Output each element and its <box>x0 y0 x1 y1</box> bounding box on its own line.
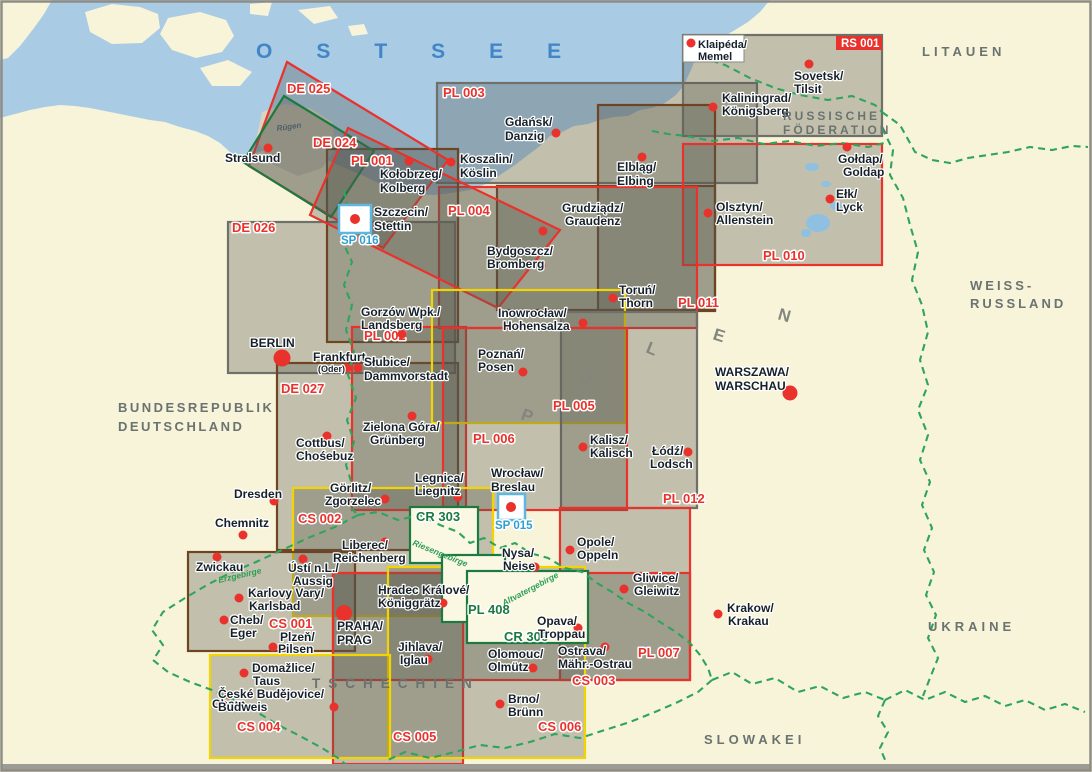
sheet-label-de024: DE 024 <box>313 135 357 150</box>
region-label-ostsee: OSTSEE <box>256 40 605 63</box>
city-label-ostrava-1: Mähr.-Ostrau <box>558 657 632 671</box>
sheet-label-cs003: CS 003 <box>572 673 615 688</box>
city-label-kaliningrad-1: Königsberg <box>722 104 789 118</box>
city-dot-cheb <box>220 616 229 625</box>
city-label-praha-0: PRAHA/ <box>337 619 384 633</box>
city-dot-gliwice <box>620 585 629 594</box>
city-legnica: Legnica/Liegnitz <box>415 471 464 502</box>
city-dot-lodz <box>684 448 693 457</box>
city-lodz: Łódź/Lodsch <box>650 444 693 471</box>
city-label-warszawa-1: WARSCHAU <box>715 379 786 393</box>
city-label-goldap-1: Goldap <box>843 165 884 179</box>
city-label-sovetsk-0: Sovetsk/ <box>794 69 844 83</box>
city-dot-grudziadz <box>539 227 548 236</box>
sheet-label-rs001: RS 001 <box>841 38 880 50</box>
city-dot-sovetsk <box>805 60 814 69</box>
sheet-label-cs004: CS 004 <box>237 719 281 734</box>
city-label-krakow-0: Krakow/ <box>727 601 774 615</box>
city-label-gdansk-0: Gdańsk/ <box>505 115 553 129</box>
city-label-slubice-0: Słubice/ <box>364 355 411 369</box>
lake-4 <box>801 229 811 237</box>
sheet-label-pl011: PL 011 <box>678 295 719 310</box>
city-label-poznan-0: Poznań/ <box>478 347 525 361</box>
city-label-ceske-budejovice-1: Budweis <box>218 700 268 714</box>
city-label-sovetsk-1: Tilsit <box>794 82 822 96</box>
sheet-label-de027: DE 027 <box>281 381 324 396</box>
city-label-klaipeda-1: Memel <box>698 51 732 63</box>
city-label-frankfurt-oder-1: (Oder) <box>318 364 345 374</box>
sheet-label-cr303: CR 303 <box>416 509 460 524</box>
city-dot-chemnitz <box>239 531 248 540</box>
city-label-opole-1: Oppeln <box>577 548 618 562</box>
region-label-weissrussland-2: RUSSLAND <box>970 296 1066 311</box>
city-label-gorzow-1: Landsberg <box>361 318 422 332</box>
city-label-opole-0: Opole/ <box>577 535 615 549</box>
city-label-elk-0: Ełk/ <box>836 187 858 201</box>
city-label-kolobrzeg-1: Kolberg <box>380 181 425 195</box>
city-label-warszawa-0: WARSZAWA/ <box>715 365 790 379</box>
city-dot-karlovy-vary <box>235 594 244 603</box>
city-label-hradec-kralove-1: Königgrätz <box>378 596 441 610</box>
citymap-sp015-dot <box>506 502 516 512</box>
lake-2 <box>806 214 830 232</box>
map-index-page: PL 003RS 001PL 011PL 010PL 004DE 026DE 0… <box>0 0 1092 772</box>
city-dot-plzen <box>269 643 278 652</box>
region-label-bundesrepublik-2: DEUTSCHLAND <box>118 419 244 434</box>
city-label-usti-0: Ústí n.L./ <box>288 560 339 575</box>
city-dot-goldap <box>843 143 852 152</box>
city-label-gorlitz-1: Zgorzelec <box>325 494 381 508</box>
sheet-label-pl010: PL 010 <box>763 248 805 263</box>
sheet-label-pl005: PL 005 <box>553 398 595 413</box>
region-label-weissrussland-1: WEISS- <box>970 278 1034 293</box>
sheet-label-pl012: PL 012 <box>663 491 705 506</box>
city-dot-domazlice <box>240 669 249 678</box>
sheet-label-sp016: SP 016 <box>341 235 379 247</box>
city-dot-berlin <box>274 350 291 367</box>
city-dot-poznan <box>519 368 528 377</box>
city-label-szczecin-0: Szczecin/ <box>374 205 429 219</box>
sheet-label-pl004: PL 004 <box>448 203 490 218</box>
city-label-karlovy-vary-0: Karlovy Vary/ <box>248 586 325 600</box>
city-label-torun-1: Thorn <box>619 296 653 310</box>
city-label-krakow-1: Krakau <box>728 614 769 628</box>
city-label-legnica-1: Liegnitz <box>415 484 460 498</box>
map-canvas: PL 003RS 001PL 011PL 010PL 004DE 026DE 0… <box>0 0 1092 772</box>
city-label-olsztyn-1: Allenstein <box>716 213 773 227</box>
city-label-opava-1: Troppau <box>538 627 585 641</box>
city-dot-kaliningrad <box>709 103 718 112</box>
city-label-kaliningrad-0: Kaliningrad/ <box>722 91 792 105</box>
city-label-inowroclaw-0: Inowrocław/ <box>498 306 567 320</box>
city-label-olomouc-1: Olmütz <box>488 660 529 674</box>
lake-1 <box>821 181 831 187</box>
city-label-frankfurt-oder-0: Frankfurt <box>313 350 366 364</box>
region-label-russische-foederation-1: RUSSISCHE <box>783 109 880 123</box>
city-dot-brno <box>496 700 505 709</box>
city-label-elk-1: Lyck <box>836 200 863 214</box>
city-dot-kolobrzeg <box>405 157 414 166</box>
sheet-label-de025: DE 025 <box>287 81 330 96</box>
city-label-jihlava-0: Jihlava/ <box>398 640 443 654</box>
city-label-chemnitz-0: Chemnitz <box>215 516 269 530</box>
city-label-brno-0: Brno/ <box>508 692 540 706</box>
city-label-kalisz-0: Kalisz/ <box>590 433 629 447</box>
region-label-ukraine: UKRAINE <box>928 619 1015 634</box>
region-label-slowakei: SLOWAKEI <box>704 732 805 747</box>
city-label-grudziadz-0: Grudziądz/ <box>562 201 624 215</box>
city-label-elblag-0: Elbląg/ <box>617 160 657 174</box>
city-label-klaipeda-0: Klaipéda/ <box>698 39 747 51</box>
city-label-olsztyn-0: Olsztyn/ <box>716 200 763 214</box>
city-dot-inowroclaw <box>579 319 588 328</box>
city-label-lodz-0: Łódź/ <box>652 444 684 458</box>
city-label-stralsund-0: Stralsund <box>225 151 280 165</box>
region-label-russische-foederation-2: FÖDERATION <box>783 122 891 137</box>
city-dot-olomouc <box>529 664 538 673</box>
city-label-gliwice-0: Gliwice/ <box>633 571 679 585</box>
sheet-label-de026: DE 026 <box>232 220 275 235</box>
sheet-label-pl001: PL 001 <box>351 153 393 168</box>
city-label-inowroclaw-1: Hohensalza <box>503 319 570 333</box>
city-label-goldap-0: Gołdap/ <box>838 152 883 166</box>
city-label-kolobrzeg-0: Kołobrzeg/ <box>380 167 443 181</box>
region-label-bundesrepublik-1: BUNDESREPUBLIK <box>118 400 274 415</box>
city-nysa: Nysa/Neise <box>502 546 540 573</box>
city-label-lodz-1: Lodsch <box>650 457 693 471</box>
city-label-wroclaw-1: Breslau <box>491 480 535 494</box>
city-dot-kalisz <box>579 443 588 452</box>
city-label-gdansk-1: Danzig <box>505 129 544 143</box>
city-label-nysa-0: Nysa/ <box>502 546 535 560</box>
region-label-tschechien: TSCHECHIEN <box>312 676 480 691</box>
city-label-opava-0: Opava/ <box>537 614 578 628</box>
city-label-bydgoszcz-0: Bydgoszcz/ <box>487 244 554 258</box>
map-bottom-edge <box>2 764 1090 770</box>
city-dot-koszalin <box>447 158 456 167</box>
city-label-gorzow-0: Gorzów Wpk./ <box>361 305 441 319</box>
city-label-kalisz-1: Kalisch <box>590 446 633 460</box>
sheet-label-pl007: PL 007 <box>638 645 680 660</box>
city-label-cottbus-0: Cottbus/ <box>296 436 345 450</box>
sheet-label-sp015: SP 015 <box>495 520 533 532</box>
city-label-gliwice-1: Gleiwitz <box>634 584 679 598</box>
sheet-label-cs001: CS 001 <box>269 616 312 631</box>
city-bydgoszcz: Bydgoszcz/Bromberg <box>487 244 554 271</box>
city-dot-ceske-budejovice <box>330 703 339 712</box>
city-dot-olsztyn <box>704 209 713 218</box>
city-label-elblag-1: Elbing <box>617 174 654 188</box>
city-label-praha-1: PRAG <box>337 633 372 647</box>
city-label-ostrava-0: Ostrava/ <box>558 644 607 658</box>
city-label-wroclaw-0: Wrocław/ <box>491 466 544 480</box>
city-dot-gorlitz <box>381 495 390 504</box>
city-label-ceske-budejovice-0: České Budějovice/ <box>218 686 325 701</box>
city-label-koszalin-0: Koszalin/ <box>460 152 513 166</box>
sheet-label-cs002: CS 002 <box>298 511 341 526</box>
city-dot-gdansk <box>552 129 561 138</box>
city-label-liberec-0: Liberec/ <box>342 538 389 552</box>
city-dot-klaipeda <box>687 39 696 48</box>
city-label-domazlice-1: Taus <box>253 674 280 688</box>
city-label-hradec-kralove-0: Hradec Králové/ <box>378 583 470 597</box>
region-label-litauen: LITAUEN <box>922 44 1005 59</box>
city-label-berlin-0: BERLIN <box>250 336 295 350</box>
city-label-brno-1: Brünn <box>508 705 543 719</box>
city-label-zielona-gora-0: Zielona Góra/ <box>363 420 440 434</box>
city-dot-torun <box>609 294 618 303</box>
city-label-cottbus-1: Chośebuz <box>296 449 353 463</box>
city-label-domazlice-0: Domažlice/ <box>252 661 315 675</box>
city-dot-krakow <box>714 610 723 619</box>
city-label-dresden-0: Dresden <box>234 487 282 501</box>
lake-0 <box>805 163 819 171</box>
city-label-slubice-1: Dammvorstadt <box>364 369 448 383</box>
city-label-koszalin-1: Köslin <box>460 166 497 180</box>
city-label-plzen-1: Pilsen <box>278 642 313 656</box>
sheet-label-cs005: CS 005 <box>393 729 436 744</box>
city-label-cheb-0: Cheb/ <box>230 613 264 627</box>
city-label-cheb-1: Eger <box>230 626 257 640</box>
city-label-liberec-1: Reichenberg <box>333 551 406 565</box>
city-label-grudziadz-1: Graudenz <box>565 214 620 228</box>
city-kaliningrad: Kaliningrad/Königsberg <box>709 91 793 118</box>
city-dot-elk <box>826 195 835 204</box>
city-label-poznan-1: Posen <box>478 360 514 374</box>
city-label-legnica-0: Legnica/ <box>415 471 464 485</box>
city-dot-slubice <box>354 364 363 373</box>
city-label-bydgoszcz-1: Bromberg <box>487 257 544 271</box>
sheet-label-cs006: CS 006 <box>538 719 581 734</box>
sheet-label-pl003: PL 003 <box>443 85 485 100</box>
city-dot-opole <box>566 546 575 555</box>
city-label-jihlava-1: Iglau <box>400 653 428 667</box>
city-label-olomouc-0: Olomouc/ <box>488 647 544 661</box>
sheet-label-pl006: PL 006 <box>473 431 515 446</box>
city-label-torun-0: Toruń/ <box>619 283 656 297</box>
city-label-szczecin-1: Stettin <box>374 219 411 233</box>
city-label-nysa-1: Neise <box>503 559 535 573</box>
city-olomouc: Olomouc/Olmütz <box>488 647 544 674</box>
city-label-usti-1: Aussig <box>293 574 333 588</box>
city-label-karlovy-vary-1: Karlsbad <box>249 599 300 613</box>
citymap-sp016-dot <box>350 214 360 224</box>
city-label-gorlitz-0: Görlitz/ <box>330 481 372 495</box>
city-label-zielona-gora-1: Grünberg <box>370 433 425 447</box>
